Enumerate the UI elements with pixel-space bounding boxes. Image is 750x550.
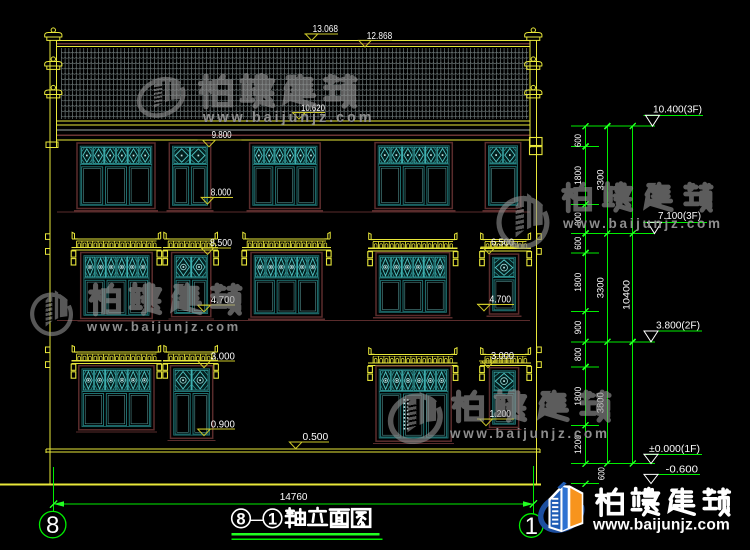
svg-text:www.baijunjz.com: www.baijunjz.com <box>202 110 375 126</box>
svg-text:10.400(3F): 10.400(3F) <box>653 104 702 116</box>
svg-text:10400: 10400 <box>622 280 633 310</box>
svg-text:8.000: 8.000 <box>211 187 232 198</box>
svg-text:3.800(2F): 3.800(2F) <box>656 320 700 332</box>
svg-text:1: 1 <box>525 513 538 540</box>
svg-text:9.800: 9.800 <box>212 130 232 141</box>
svg-text:1: 1 <box>268 511 277 529</box>
svg-text:1800: 1800 <box>573 273 584 292</box>
svg-text:600: 600 <box>573 237 584 250</box>
svg-text:3300: 3300 <box>596 277 607 298</box>
svg-text:600: 600 <box>573 134 584 147</box>
svg-text:600: 600 <box>597 467 608 480</box>
svg-text:www.baijunjz.com: www.baijunjz.com <box>449 426 610 441</box>
svg-text:900: 900 <box>573 321 584 335</box>
svg-text:—: — <box>250 511 264 527</box>
svg-text:www.baijunjz.com: www.baijunjz.com <box>592 517 730 534</box>
svg-text:-0.600: -0.600 <box>666 463 699 475</box>
svg-text:13.068: 13.068 <box>313 24 339 35</box>
svg-text:www.baijunjz.com: www.baijunjz.com <box>86 319 241 334</box>
svg-text:8: 8 <box>46 512 59 539</box>
svg-text:±0.000(1F): ±0.000(1F) <box>649 443 700 455</box>
svg-text:800: 800 <box>573 348 584 362</box>
svg-text:www.baijunjz.com: www.baijunjz.com <box>562 216 723 231</box>
svg-text:14760: 14760 <box>280 491 308 503</box>
svg-text:8: 8 <box>236 511 245 529</box>
